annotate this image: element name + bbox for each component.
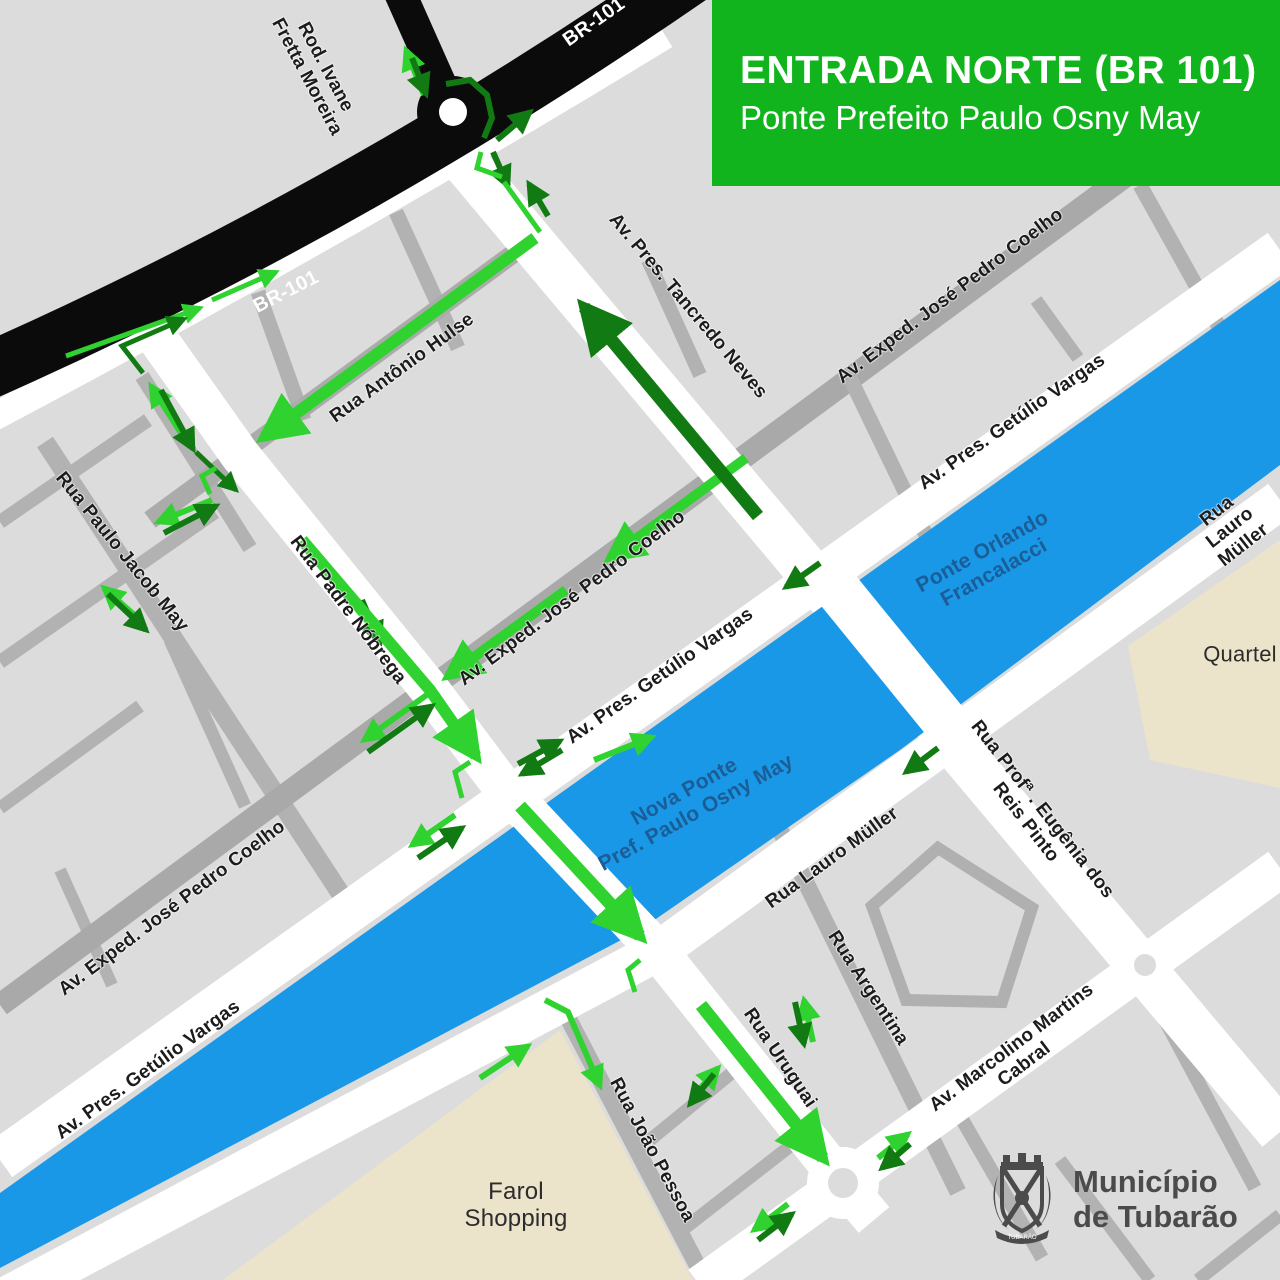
- basemap-svg: [0, 0, 1280, 1280]
- label-quartel: Quartel: [1203, 643, 1277, 668]
- tubarao-traffic-map: Rod. Ivane Fretta MoreiraBR-101BR-101Av.…: [0, 0, 1280, 1280]
- logo-banner-text: TUBARÃO: [1007, 1234, 1036, 1241]
- logo-line2: de Tubarão: [1073, 1200, 1238, 1235]
- page-subtitle: Ponte Prefeito Paulo Osny May: [740, 99, 1280, 137]
- title-box: ENTRADA NORTE (BR 101) Ponte Prefeito Pa…: [712, 0, 1280, 186]
- page-title: ENTRADA NORTE (BR 101): [740, 49, 1280, 93]
- label-farol-shopping: Farol Shopping: [464, 1179, 567, 1233]
- municipality-logo: TUBARÃO Município de Tubarão: [985, 1152, 1238, 1248]
- coat-of-arms-icon: TUBARÃO: [985, 1152, 1059, 1248]
- logo-line1: Município: [1073, 1165, 1238, 1200]
- logo-text: Município de Tubarão: [1073, 1165, 1238, 1234]
